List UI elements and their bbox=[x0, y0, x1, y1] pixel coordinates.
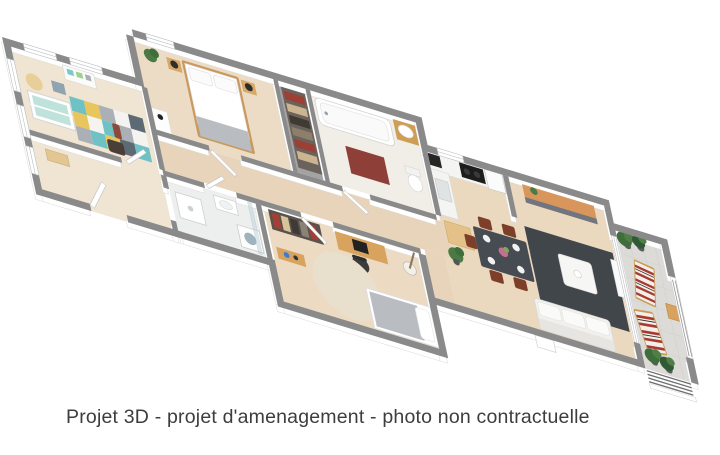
floor-plan-page: Projet 3D - projet d'amenagement - photo… bbox=[0, 0, 720, 455]
floor-plan-3d bbox=[0, 0, 720, 455]
caption: Projet 3D - projet d'amenagement - photo… bbox=[66, 406, 590, 429]
floors bbox=[0, 0, 709, 431]
railing-glass-bottom bbox=[650, 384, 697, 403]
